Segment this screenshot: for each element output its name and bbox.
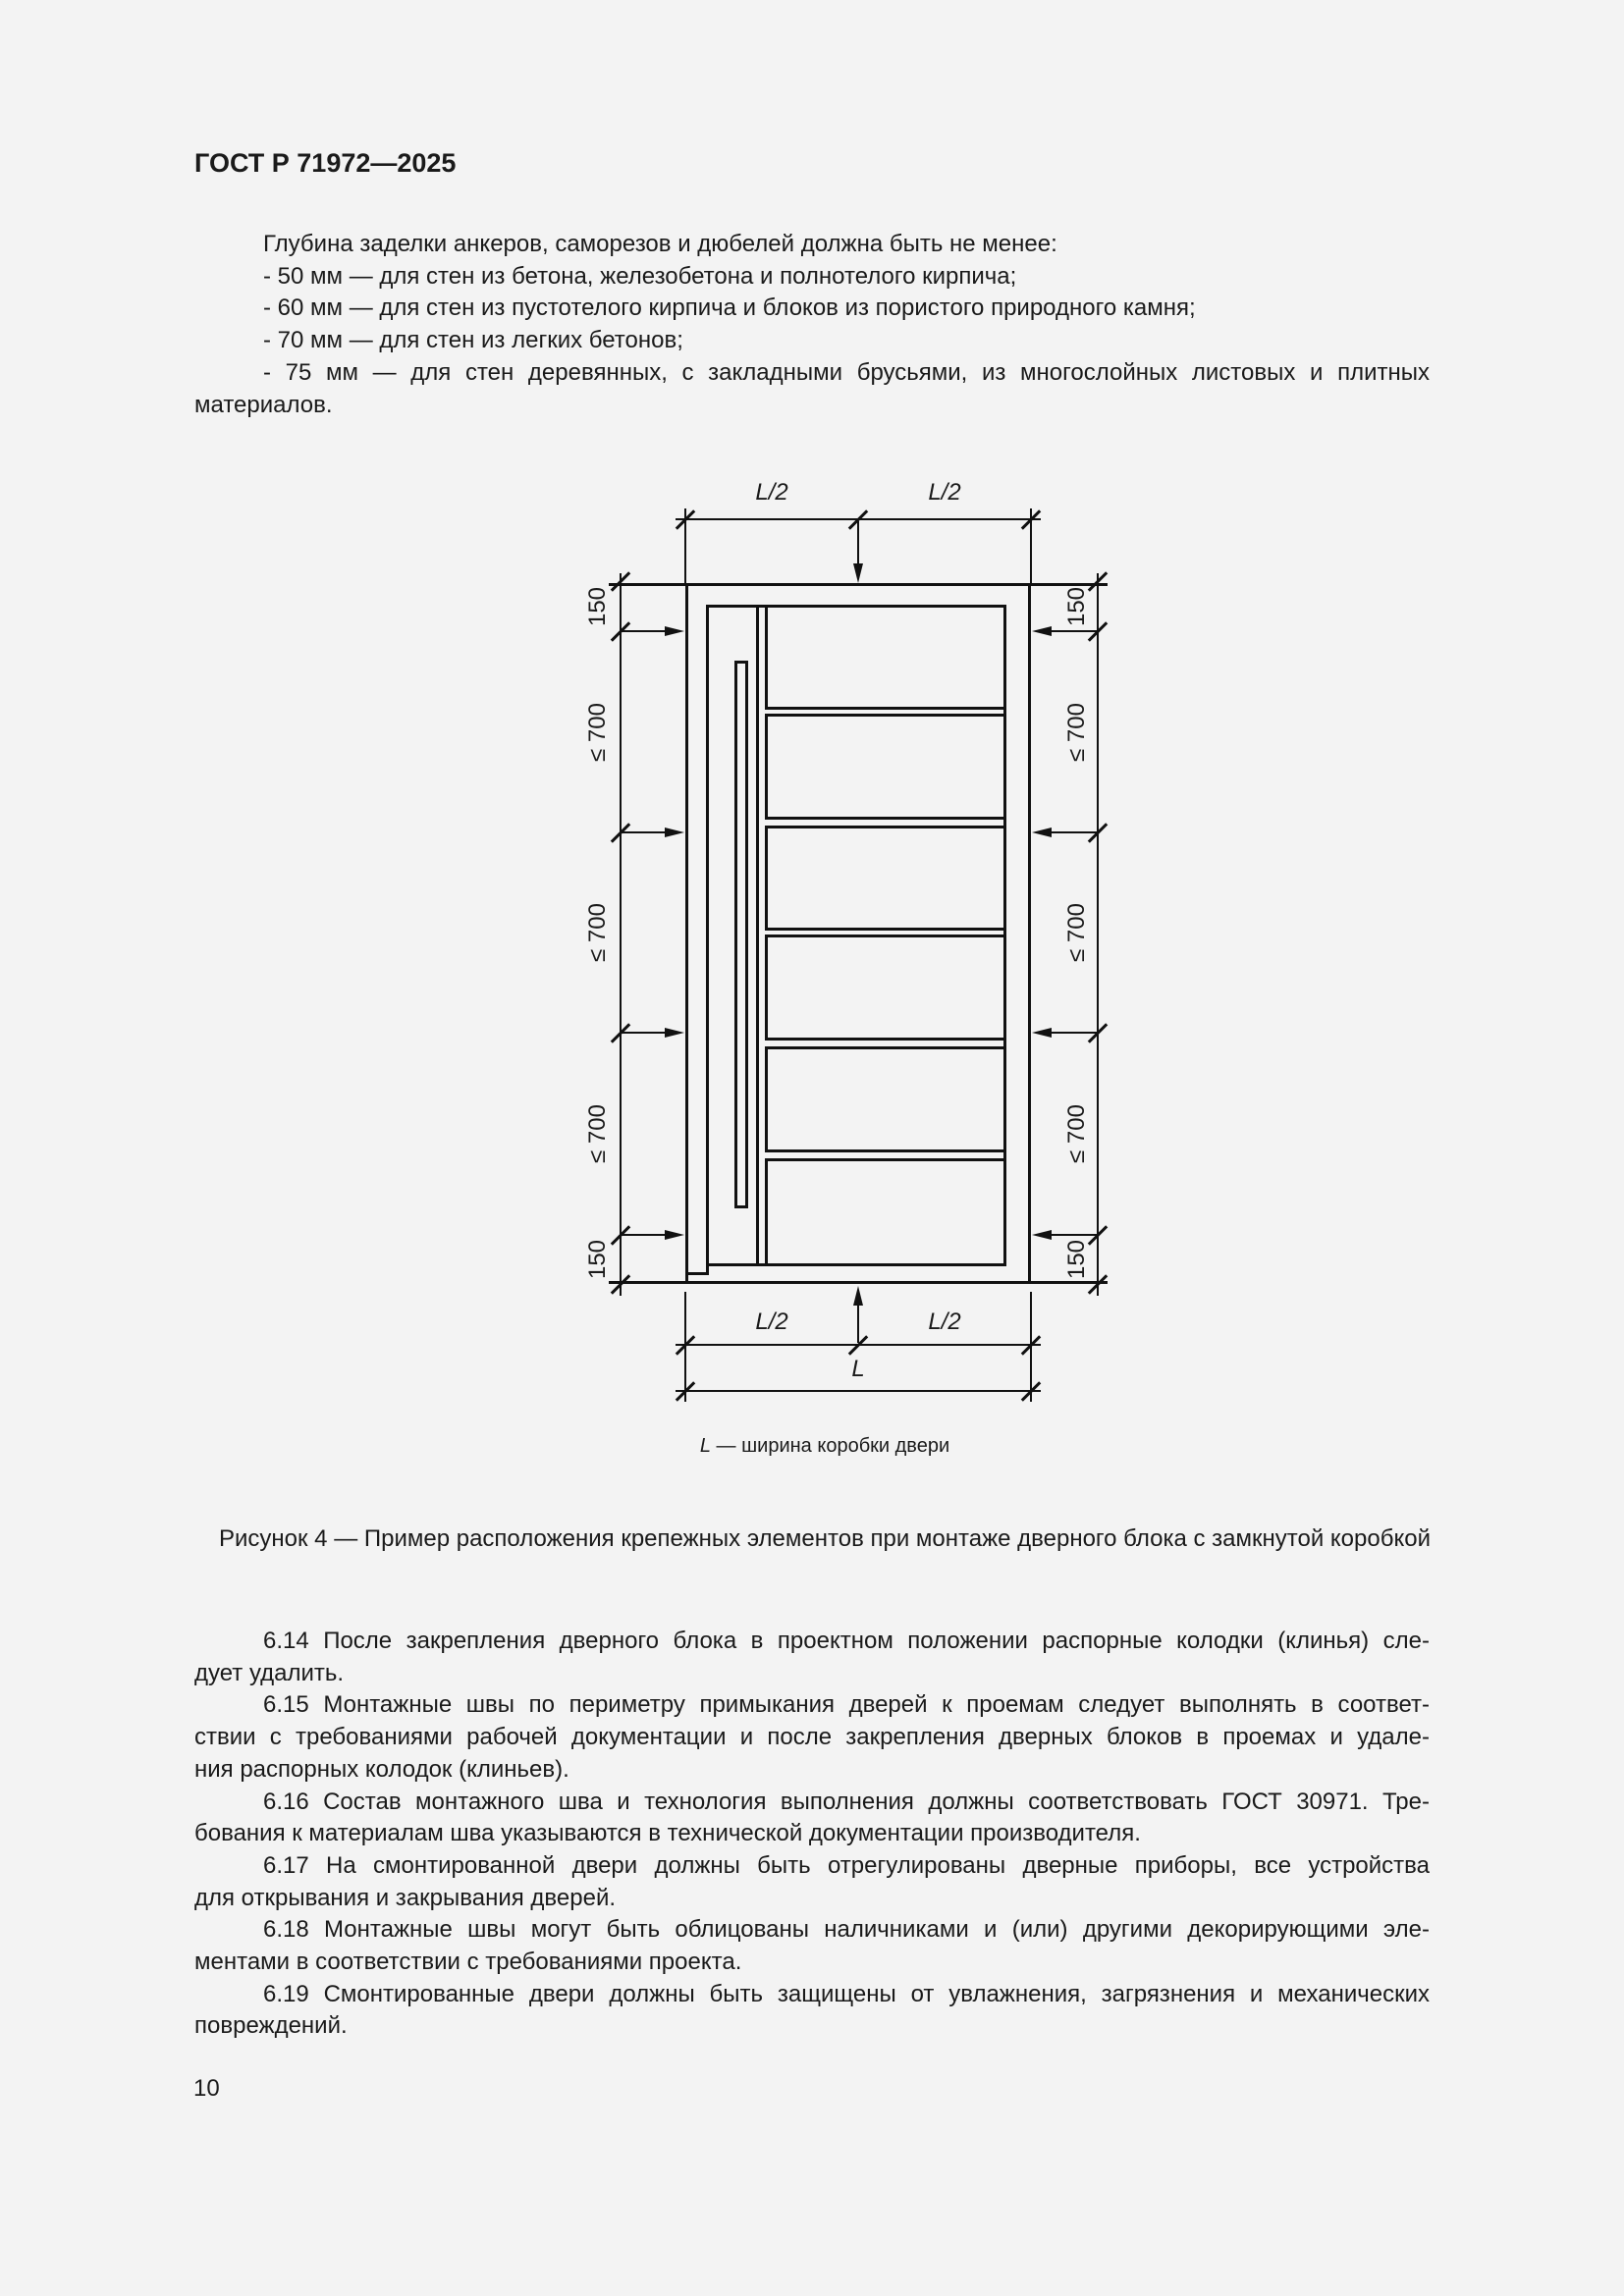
fastener-arrow-right bbox=[665, 828, 684, 837]
fastener-arrow-shaft bbox=[622, 1032, 665, 1034]
dim-label-spacing: ≤ 700 bbox=[1061, 874, 1093, 991]
text-line: 6.17 На смонтированной двери должны быть… bbox=[194, 1850, 1430, 1883]
fastener-arrow-right bbox=[665, 626, 684, 636]
fastener-arrow-down bbox=[853, 563, 863, 583]
threshold-stub bbox=[706, 1266, 709, 1275]
fastener-arrow-up bbox=[853, 1286, 863, 1306]
door-panel-4 bbox=[765, 934, 1006, 1041]
text-line: бования к материалам шва указываются в т… bbox=[194, 1818, 1430, 1850]
fastener-arrow-shaft bbox=[857, 1306, 859, 1343]
dimension-line bbox=[620, 573, 622, 1296]
text-line: - 60 мм — для стен из пустотелого кирпич… bbox=[194, 293, 1430, 325]
text-line: - 50 мм — для стен из бетона, железобето… bbox=[194, 261, 1430, 294]
dim-label-spacing: ≤ 700 bbox=[582, 673, 614, 791]
fastener-arrow-left bbox=[1032, 1230, 1052, 1240]
text-line: 6.16 Состав монтажного шва и технология … bbox=[194, 1787, 1430, 1819]
text-line: - 70 мм — для стен из легких бетонов; bbox=[194, 325, 1430, 357]
text-line: ствии с требованиями рабочей документаци… bbox=[194, 1722, 1430, 1754]
dim-label-edge-offset: 150 bbox=[1061, 1201, 1093, 1318]
fastener-arrow-shaft bbox=[622, 1234, 665, 1236]
text-line: ментами в соответствии с требованиями пр… bbox=[194, 1947, 1430, 1979]
door-panel-5 bbox=[765, 1046, 1006, 1152]
door-panel-3 bbox=[765, 826, 1006, 931]
dim-label-half-width: L/2 bbox=[713, 1309, 831, 1335]
page-number: 10 bbox=[193, 2075, 220, 2103]
text-line: 6.15 Монтажные швы по периметру примыкан… bbox=[194, 1689, 1430, 1722]
dim-label-edge-offset: 150 bbox=[1061, 548, 1093, 666]
dim-label-edge-offset: 150 bbox=[582, 548, 614, 666]
text-line: 6.14 После закрепления дверного блока в … bbox=[194, 1626, 1430, 1658]
dim-label-full-width: L bbox=[799, 1357, 917, 1382]
fastener-arrow-shaft bbox=[1052, 1032, 1097, 1034]
fastener-arrow-left bbox=[1032, 828, 1052, 837]
text-line: Глубина заделки анкеров, саморезов и дюб… bbox=[194, 229, 1430, 261]
intro-paragraphs: Глубина заделки анкеров, саморезов и дюб… bbox=[194, 229, 1430, 421]
text-line: 6.18 Монтажные швы могут быть облицованы… bbox=[194, 1914, 1430, 1947]
dim-label-spacing: ≤ 700 bbox=[1061, 1075, 1093, 1193]
fastener-arrow-shaft bbox=[857, 521, 859, 563]
fastener-arrow-right bbox=[665, 1028, 684, 1038]
door-panel-6 bbox=[765, 1158, 1006, 1266]
fastener-arrow-shaft bbox=[1052, 831, 1097, 833]
dimension-line bbox=[676, 1390, 1041, 1392]
text-line: повреждений. bbox=[194, 2010, 1430, 2043]
legend-text: — ширина коробки двери bbox=[711, 1435, 949, 1457]
door-handle bbox=[734, 661, 748, 1208]
document-code: ГОСТ Р 71972—2025 bbox=[194, 148, 456, 179]
legend-symbol: L bbox=[700, 1435, 711, 1457]
fastener-arrow-left bbox=[1032, 1028, 1052, 1038]
text-line: материалов. bbox=[194, 390, 1430, 422]
door-panel-1 bbox=[765, 605, 1006, 710]
text-line: для открывания и закрывания дверей. bbox=[194, 1883, 1430, 1915]
text-line: 6.19 Смонтированные двери должны быть за… bbox=[194, 1979, 1430, 2011]
dim-label-half-width: L/2 bbox=[886, 480, 1003, 506]
dim-label-half-width: L/2 bbox=[886, 1309, 1003, 1335]
dim-label-spacing: ≤ 700 bbox=[582, 1075, 614, 1193]
dim-label-spacing: ≤ 700 bbox=[582, 874, 614, 991]
dimension-line bbox=[1097, 573, 1099, 1296]
figure-caption: Рисунок 4 — Пример расположения крепежны… bbox=[194, 1525, 1455, 1553]
door-stile-line bbox=[756, 605, 759, 1266]
body-paragraphs: 6.14 После закрепления дверного блока в … bbox=[194, 1626, 1430, 2043]
dim-label-edge-offset: 150 bbox=[582, 1201, 614, 1318]
fastener-arrow-shaft bbox=[622, 630, 665, 632]
fastener-arrow-shaft bbox=[622, 831, 665, 833]
dim-label-spacing: ≤ 700 bbox=[1061, 673, 1093, 791]
dim-label-half-width: L/2 bbox=[713, 480, 831, 506]
door-panel-2 bbox=[765, 714, 1006, 820]
fastener-arrow-right bbox=[665, 1230, 684, 1240]
text-line: - 75 мм — для стен деревянных, с закладн… bbox=[194, 357, 1430, 390]
figure-legend: L — ширина коробки двери bbox=[700, 1435, 949, 1458]
text-line: дует удалить. bbox=[194, 1658, 1430, 1690]
fastener-arrow-left bbox=[1032, 626, 1052, 636]
text-line: ния распорных колодок (клиньев). bbox=[194, 1754, 1430, 1787]
